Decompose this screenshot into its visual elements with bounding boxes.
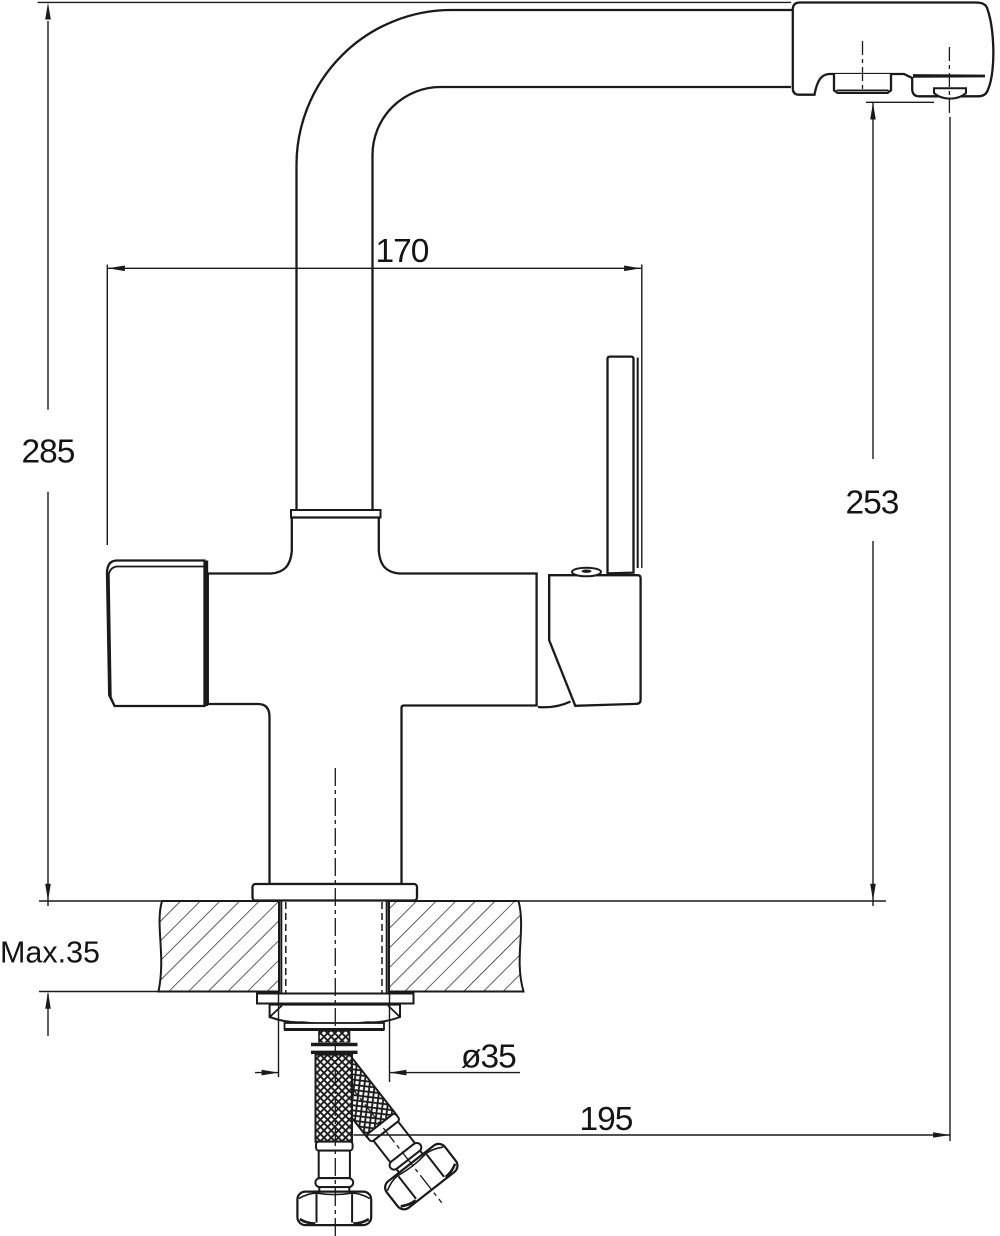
svg-text:195: 195 (580, 1101, 633, 1138)
svg-text:Max.35: Max.35 (0, 936, 100, 970)
svg-text:170: 170 (376, 233, 429, 270)
svg-text:253: 253 (846, 485, 899, 522)
svg-text:285: 285 (22, 434, 75, 471)
svg-text:ø35: ø35 (461, 1039, 516, 1076)
